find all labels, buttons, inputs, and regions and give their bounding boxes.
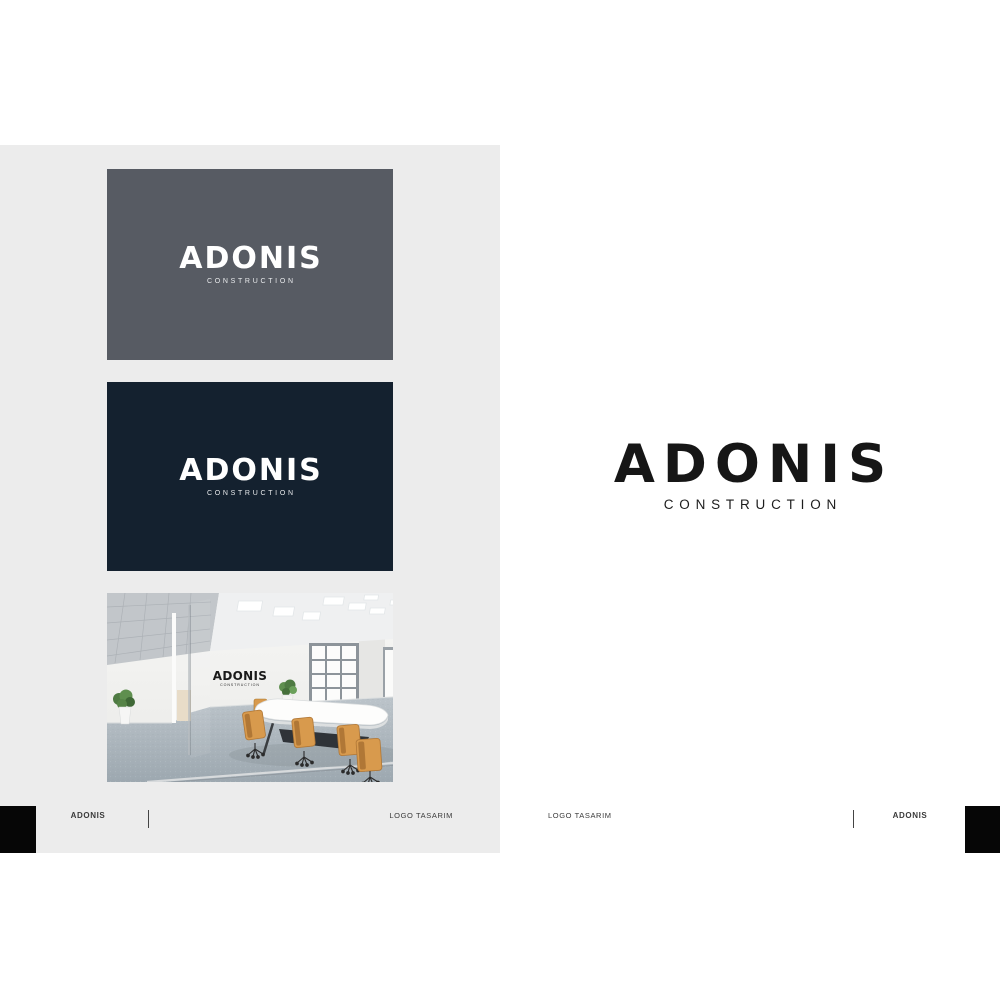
footer-divider-right [853, 810, 854, 828]
logo-card-navy: ADONIS CONSTRUCTION [107, 382, 393, 571]
logo-lockup: ADONIS CONSTRUCTION [179, 244, 321, 285]
wall-edge [172, 613, 176, 723]
brand-wordmark: ADONIS [179, 244, 323, 274]
wall-logo: ADONIS CONSTRUCTION [213, 669, 267, 687]
office-photo-card: ADONIS CONSTRUCTION [107, 593, 393, 782]
footer-caption-left: LOGO TASARIM [353, 810, 453, 822]
footer-divider-left [148, 810, 149, 828]
accent-square-right [965, 806, 1000, 853]
brand-tagline: CONSTRUCTION [207, 278, 296, 285]
logo-lockup: ADONIS CONSTRUCTION [179, 456, 321, 497]
accent-square-left [0, 806, 36, 853]
mockup-board: ADONIS CONSTRUCTION ADONIS CONSTRUCTION [0, 145, 500, 853]
wall-corner-shade [359, 633, 385, 703]
primary-logo: ADONIS CONSTRUCTION [500, 438, 1000, 514]
footer-brand-right: ADONIS [880, 810, 940, 822]
brand-tagline: CONSTRUCTION [220, 683, 260, 687]
office-mockup-illustration: ADONIS CONSTRUCTION [107, 593, 393, 782]
brand-tagline: CONSTRUCTION [207, 490, 296, 497]
brand-tagline: CONSTRUCTION [664, 498, 842, 512]
brand-wordmark: ADONIS [213, 669, 267, 683]
logo-card-slate: ADONIS CONSTRUCTION [107, 169, 393, 360]
brand-wordmark: ADONIS [179, 456, 323, 486]
brand-wordmark: ADONIS [614, 438, 894, 491]
logo-presentation-page: ADONIS CONSTRUCTION ADONIS CONSTRUCTION [0, 0, 1000, 1000]
footer-caption-right: LOGO TASARIM [548, 810, 648, 822]
footer-brand-left: ADONIS [58, 810, 118, 822]
